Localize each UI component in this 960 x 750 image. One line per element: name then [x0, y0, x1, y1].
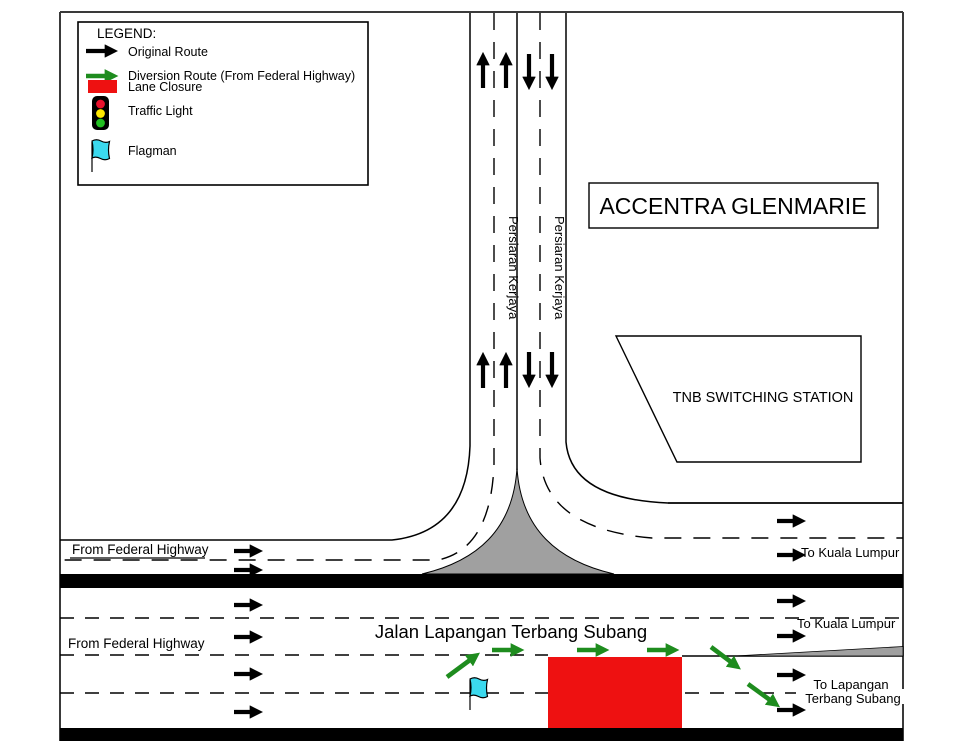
diversion-route-arrow — [748, 684, 770, 700]
traffic-light-icon — [92, 96, 109, 130]
traffic-light-amber — [96, 109, 105, 118]
direction-label: From Federal Highway — [72, 542, 209, 557]
flagman-flag-icon — [470, 678, 488, 698]
place-label: TNB SWITCHING STATION — [673, 390, 854, 406]
place-label: ACCENTRA GLENMARIE — [599, 193, 866, 219]
split-gore-wedge — [735, 647, 903, 657]
legend-item-label: Lane Closure — [128, 80, 202, 94]
junction-gore-island — [422, 468, 614, 574]
legend-item-label: Flagman — [128, 144, 177, 158]
traffic-light-green — [96, 119, 105, 128]
median-bar — [60, 574, 903, 588]
legend-item-label: Traffic Light — [128, 104, 193, 118]
direction-label: To Kuala Lumpur — [797, 616, 896, 631]
legend-item-label: Original Route — [128, 45, 208, 59]
diversion-route-arrow — [447, 660, 470, 677]
road-name-label: Jalan Lapangan Terbang Subang — [375, 621, 647, 642]
road-edge-right-curve — [566, 13, 903, 503]
direction-label: From Federal Highway — [68, 636, 205, 651]
lane-closure-area — [548, 657, 682, 728]
traffic-light-red — [96, 100, 105, 109]
road-bottom-bar — [60, 728, 903, 741]
lane-divider-dashed — [540, 13, 903, 538]
street-name-label: Persiaran Kerjaya — [552, 216, 567, 320]
places: ACCENTRA GLENMARIE TNB SWITCHING STATION — [589, 183, 878, 462]
flagman-marker — [470, 678, 488, 710]
lane-closure-swatch — [88, 80, 117, 93]
diagram-canvas: Persiaran Kerjaya Persiaran Kerjaya From… — [0, 0, 960, 750]
lower-carriageway: From Federal Highway Jalan Lapangan Terb… — [60, 601, 906, 741]
legend: LEGEND: Original Route Diversion Route (… — [78, 22, 368, 185]
flag-icon — [92, 140, 110, 160]
direction-label: To Kuala Lumpur — [801, 545, 900, 560]
diversion-route-arrow — [711, 647, 731, 662]
direction-label: Terbang Subang — [805, 691, 900, 706]
traffic-diversion-diagram: Persiaran Kerjaya Persiaran Kerjaya From… — [0, 0, 960, 750]
street-name-label: Persiaran Kerjaya — [506, 216, 521, 320]
direction-label: To Lapangan — [813, 677, 888, 692]
legend-title: LEGEND: — [97, 26, 156, 41]
legend-box — [78, 22, 368, 185]
